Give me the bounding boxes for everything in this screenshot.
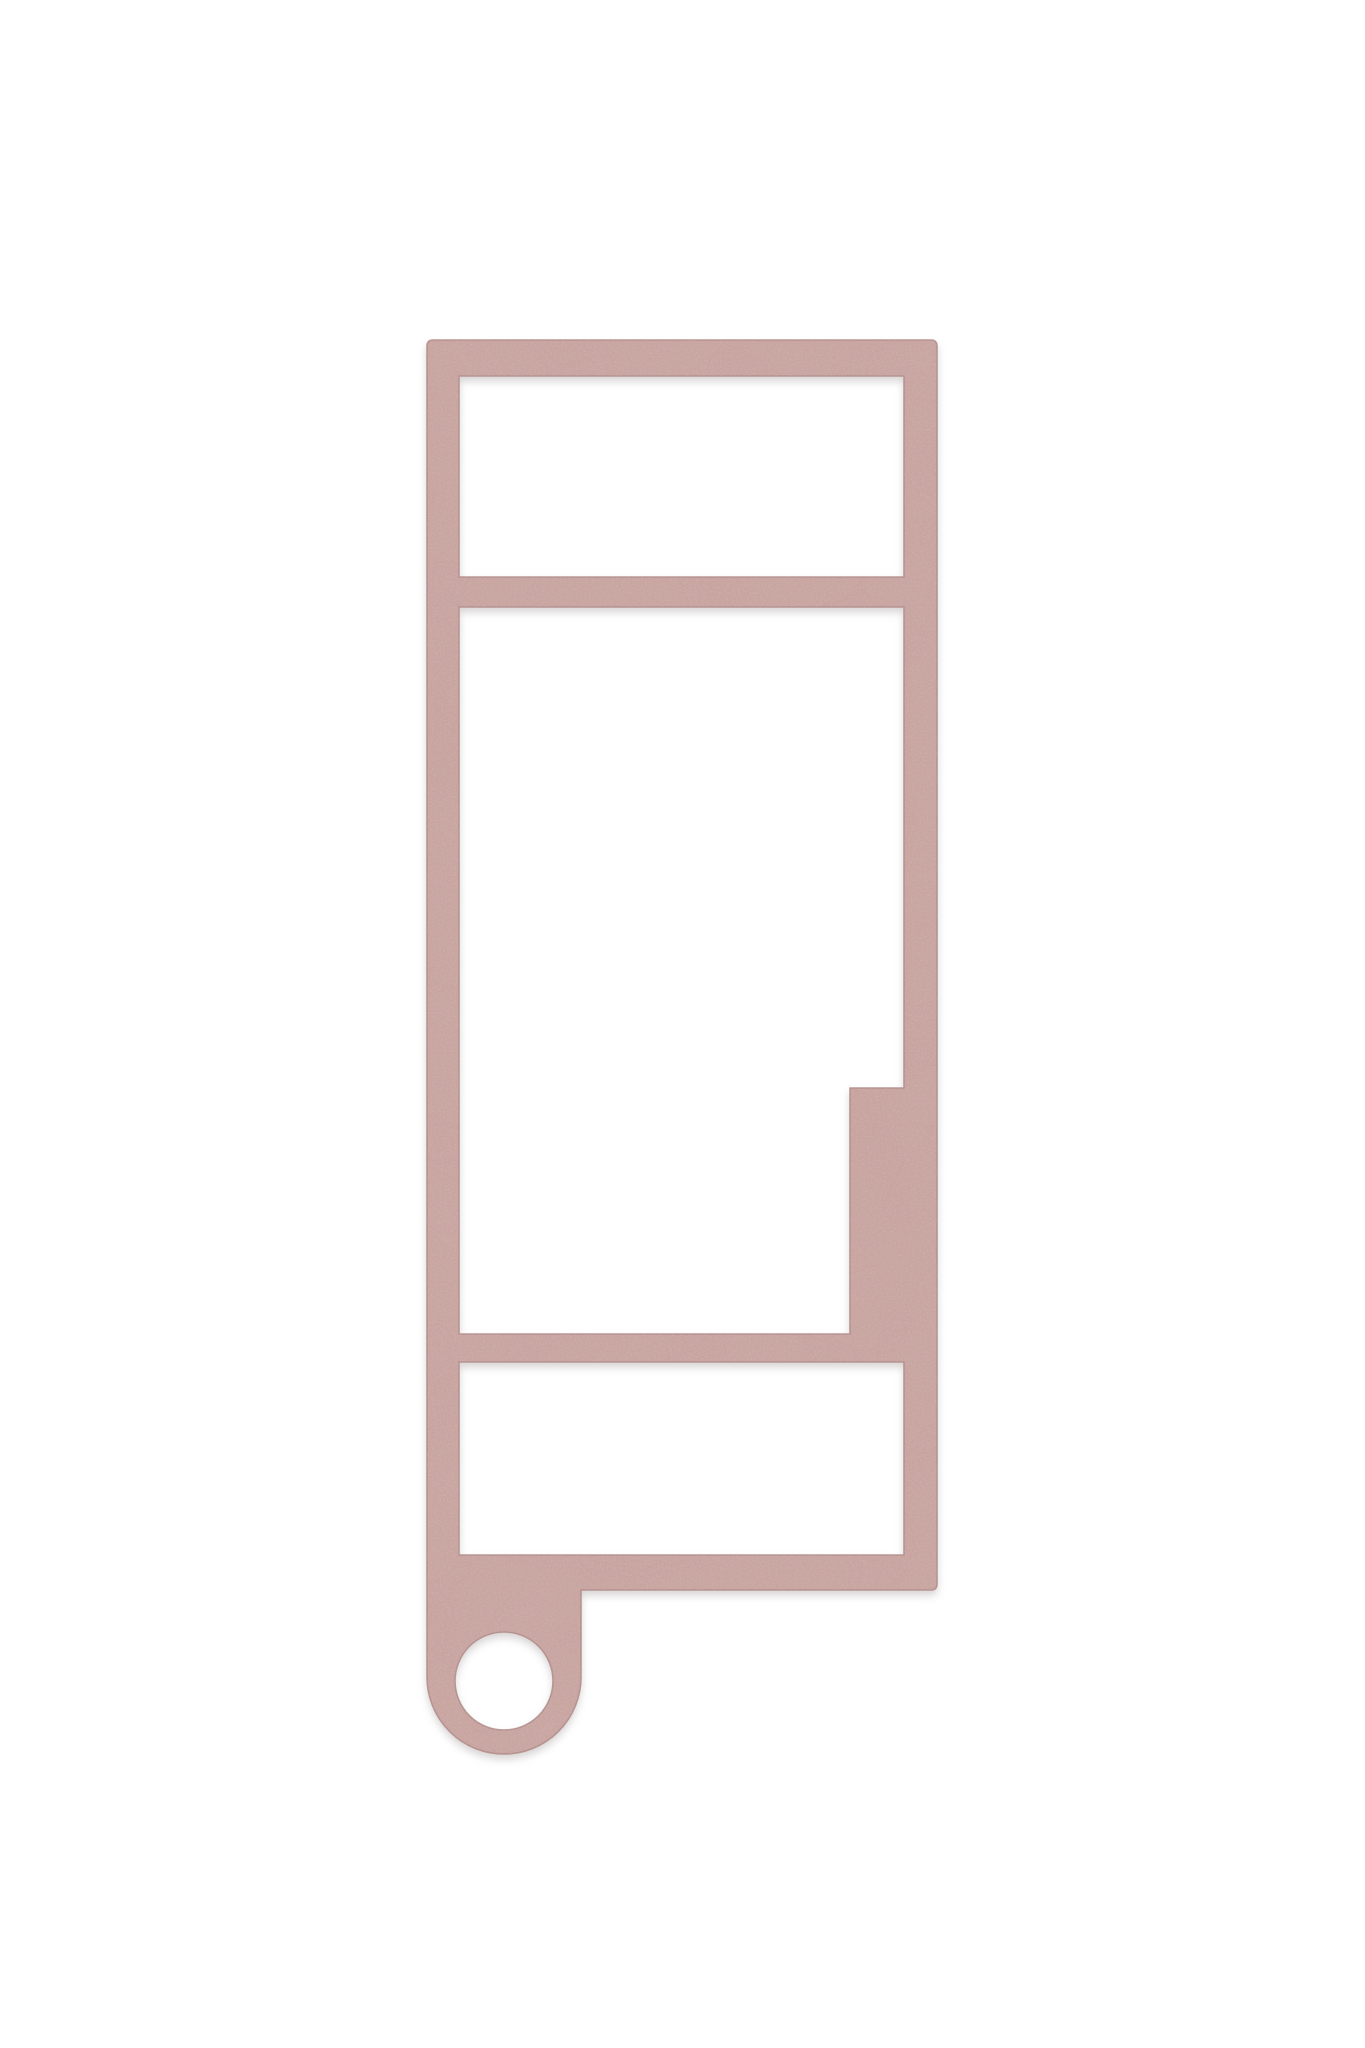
top-window-opening xyxy=(459,376,904,577)
bottom-window-opening xyxy=(459,1362,904,1555)
grain-overlay-dark xyxy=(427,340,937,1754)
frame-render-svg xyxy=(0,0,1365,2048)
grain-overlay-light xyxy=(427,340,937,1754)
frame-shape xyxy=(427,340,937,1754)
render-canvas xyxy=(0,0,1365,2048)
grain-overlay-blotch xyxy=(427,340,937,1754)
middle-window-opening xyxy=(459,607,904,1334)
